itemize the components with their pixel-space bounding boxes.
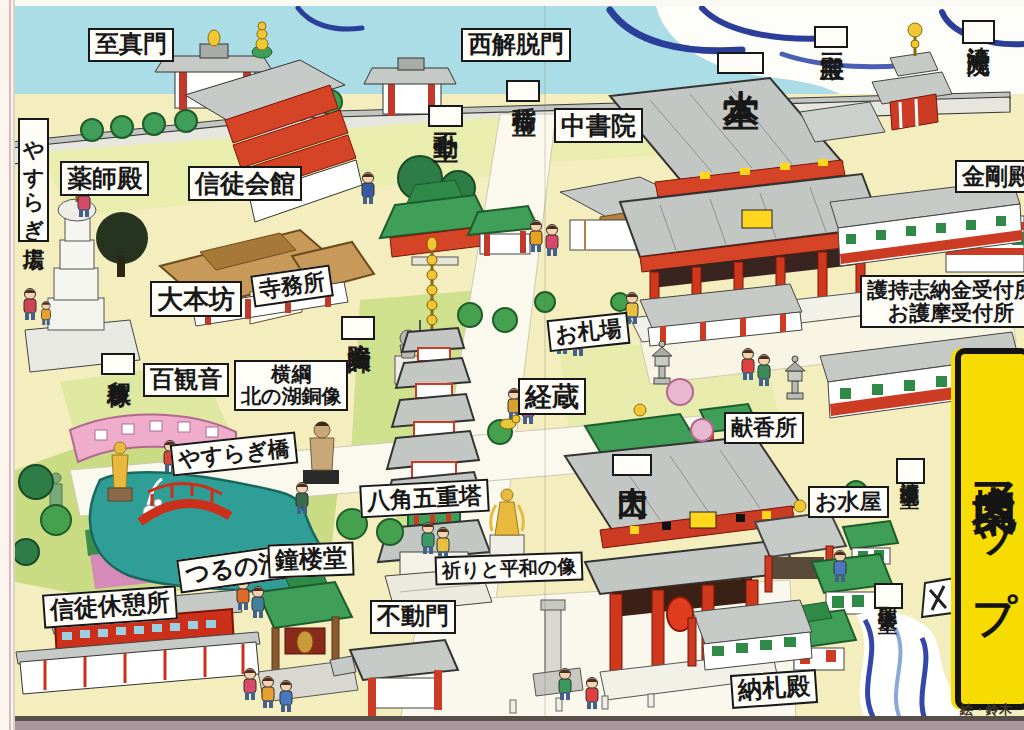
map-label-fudodo: 不動堂 (428, 105, 463, 127)
map-label-daihonbo: 大本坊 (150, 281, 242, 317)
map-title-banner: 境内案内マップ (955, 348, 1024, 710)
map-label-shintokaikan: 信徒会館 (188, 166, 302, 201)
map-label-shojokoin: 清浄光院 (962, 20, 995, 44)
map-label-daisanmon: 大山門 (612, 454, 652, 476)
map-label-nosatsuden: 納札殿 (730, 669, 818, 709)
map-label-shotoku-taishido: 聖徳太子堂 (874, 583, 903, 609)
map-label-henro-daishi: 遍路大師 (341, 316, 375, 340)
map-label-kongoden: 金剛殿 (955, 160, 1024, 193)
map-label-yasuragi-hiroba: やすらぎ広場 (18, 118, 49, 242)
map-label-inarido: 稲荷堂 (506, 80, 540, 102)
map-label-jimusho: 寺務所 (250, 265, 334, 308)
map-label-seiryu-gongendo: 清瀧権現堂 (896, 458, 925, 484)
map-labels: 至真門西解脱門三宝殿清浄光院やすらぎ広場薬師殿信徒会館不動堂稲荷堂中書院大本堂金… (0, 0, 1024, 730)
map-label-yasuragibashi: やすらぎ橋 (170, 431, 299, 476)
map-label-chushoin: 中書院 (554, 108, 643, 143)
map-label-fudomon: 不動門 (370, 600, 456, 634)
map-label-uketsukesho: 護持志納金受付所お護摩受付所 (860, 275, 1024, 328)
map-label-inori-to-heiwa-no-zo: 祈りと平和の像 (435, 551, 584, 585)
map-label-hakkaku-gojunoto: 八角五重塔 (359, 479, 490, 519)
map-label-shakusonzo: 釈尊像 (101, 353, 135, 375)
map-label-kyozo: 経蔵 (518, 378, 586, 415)
map-label-shinto-kyukeisho: 信徒休憩所 (42, 585, 178, 628)
credit-text: 絵・鈴木 (960, 701, 1012, 719)
map-label-daihondo: 大本堂 (717, 52, 764, 74)
map-label-sanpoden: 三宝殿 (814, 26, 848, 48)
map-label-yakushiden: 薬師殿 (60, 161, 149, 196)
map-label-shorodo: 鐘楼堂 (267, 542, 354, 579)
map-label-shijinmon: 至真門 (88, 28, 174, 62)
map-label-yokozuna-kitanoumi: 横綱北の湖銅像 (234, 360, 348, 411)
map-label-ofudaba: お札場 (547, 312, 630, 352)
map-label-hyakkannon: 百観音 (143, 363, 229, 397)
map-label-nishi-gedatsumon: 西解脱門 (461, 28, 571, 62)
temple-grounds-map: 至真門西解脱門三宝殿清浄光院やすらぎ広場薬師殿信徒会館不動堂稲荷堂中書院大本堂金… (0, 0, 1024, 730)
map-label-omizuya: お水屋 (808, 486, 889, 518)
map-label-kenkosho: 献香所 (724, 412, 804, 444)
